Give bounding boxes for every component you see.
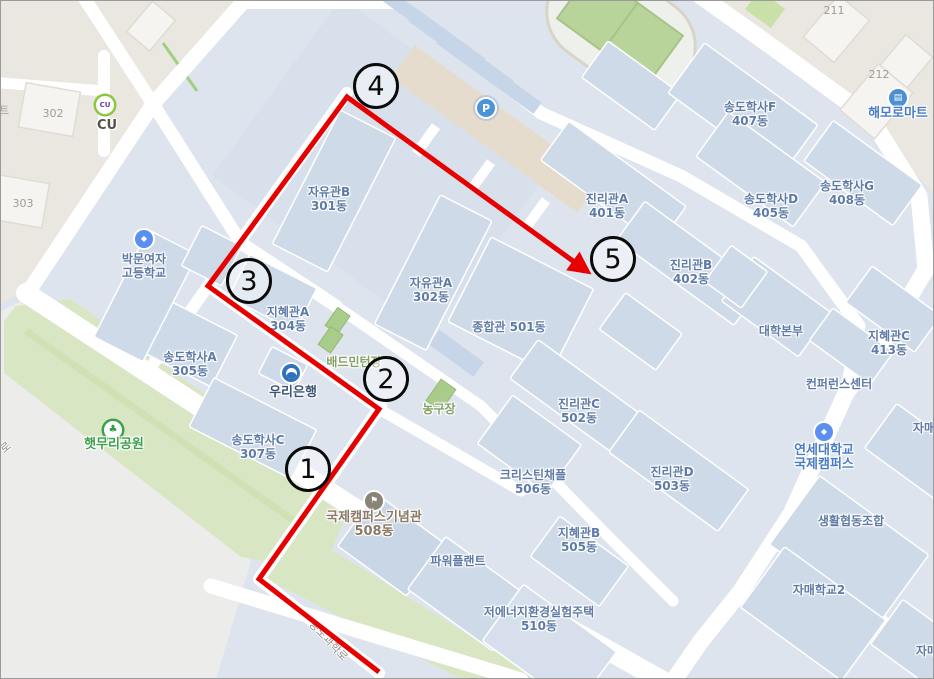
route-waypoint-4: 4 bbox=[353, 63, 399, 109]
route-waypoint-2: 2 bbox=[363, 356, 409, 402]
route-waypoint-5: 5 bbox=[590, 236, 636, 282]
map-canvas[interactable]: CU◆♣⚑◆▤P 자유관B301동자유관A302동지혜관A304동송도학사A30… bbox=[0, 0, 934, 679]
route-waypoint-3: 3 bbox=[226, 258, 272, 304]
route-waypoint-1: 1 bbox=[285, 446, 331, 492]
route-overlay bbox=[1, 1, 934, 679]
